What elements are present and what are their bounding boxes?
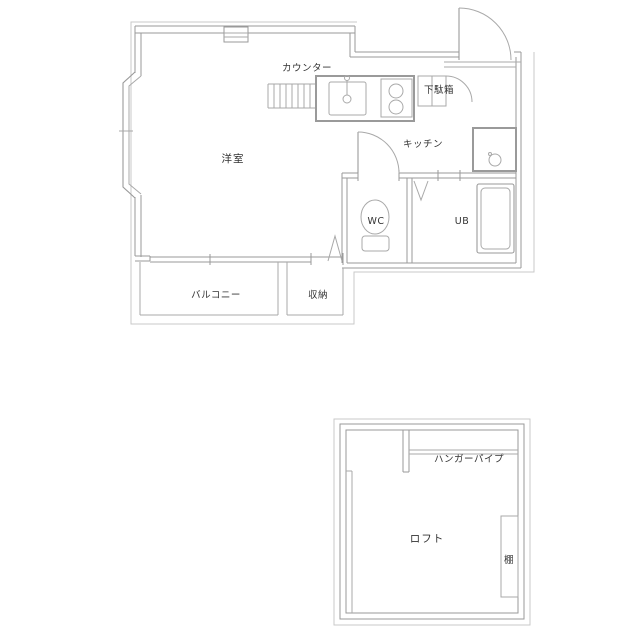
washer-symbol: [473, 128, 516, 171]
floor-plan-drawing: カウンター 下駄箱 洋室 キッチン WC UB バルコニー 収納 ハンガーパイプ…: [0, 0, 640, 640]
label-western-room: 洋室: [222, 152, 245, 165]
sink-symbol: [329, 76, 366, 116]
counter-symbol: [268, 84, 316, 108]
label-hanger-pipe: ハンガーパイプ: [434, 454, 504, 465]
bathtub-symbol: [477, 184, 514, 253]
storage-walls: [287, 262, 343, 315]
label-storage: 収納: [308, 289, 328, 301]
label-kitchen: キッチン: [403, 139, 443, 150]
floor-plan-canvas: カウンター 下駄箱 洋室 キッチン WC UB バルコニー 収納 ハンガーパイプ…: [0, 0, 640, 640]
loft-floor-edge: [346, 471, 352, 613]
label-loft: ロフト: [410, 533, 445, 545]
label-shoe-cabinet: 下駄箱: [424, 84, 454, 96]
label-wc: WC: [367, 216, 384, 227]
top-window-symbol: [224, 27, 248, 42]
kitchen-unit-symbol: [316, 76, 414, 122]
main-floor-plan: カウンター 下駄箱 洋室 キッチン WC UB バルコニー 収納: [119, 8, 534, 324]
wc-door-symbol: [358, 132, 399, 173]
bath-folding-door-symbol: [414, 181, 428, 200]
bay-window-symbol: [119, 72, 141, 198]
label-shelf: 棚: [504, 554, 514, 566]
entrance-step-lines: [444, 62, 521, 67]
loft-partition-wall: [403, 430, 409, 472]
entrance-door-symbol: [459, 8, 511, 60]
label-counter: カウンター: [282, 63, 332, 74]
label-unit-bath: UB: [455, 216, 469, 227]
stove-symbol: [381, 79, 412, 117]
loft-floor-plan: ハンガーパイプ ロフト 棚: [334, 419, 530, 625]
balcony-walls: [140, 262, 278, 315]
label-balcony: バルコニー: [191, 290, 241, 301]
